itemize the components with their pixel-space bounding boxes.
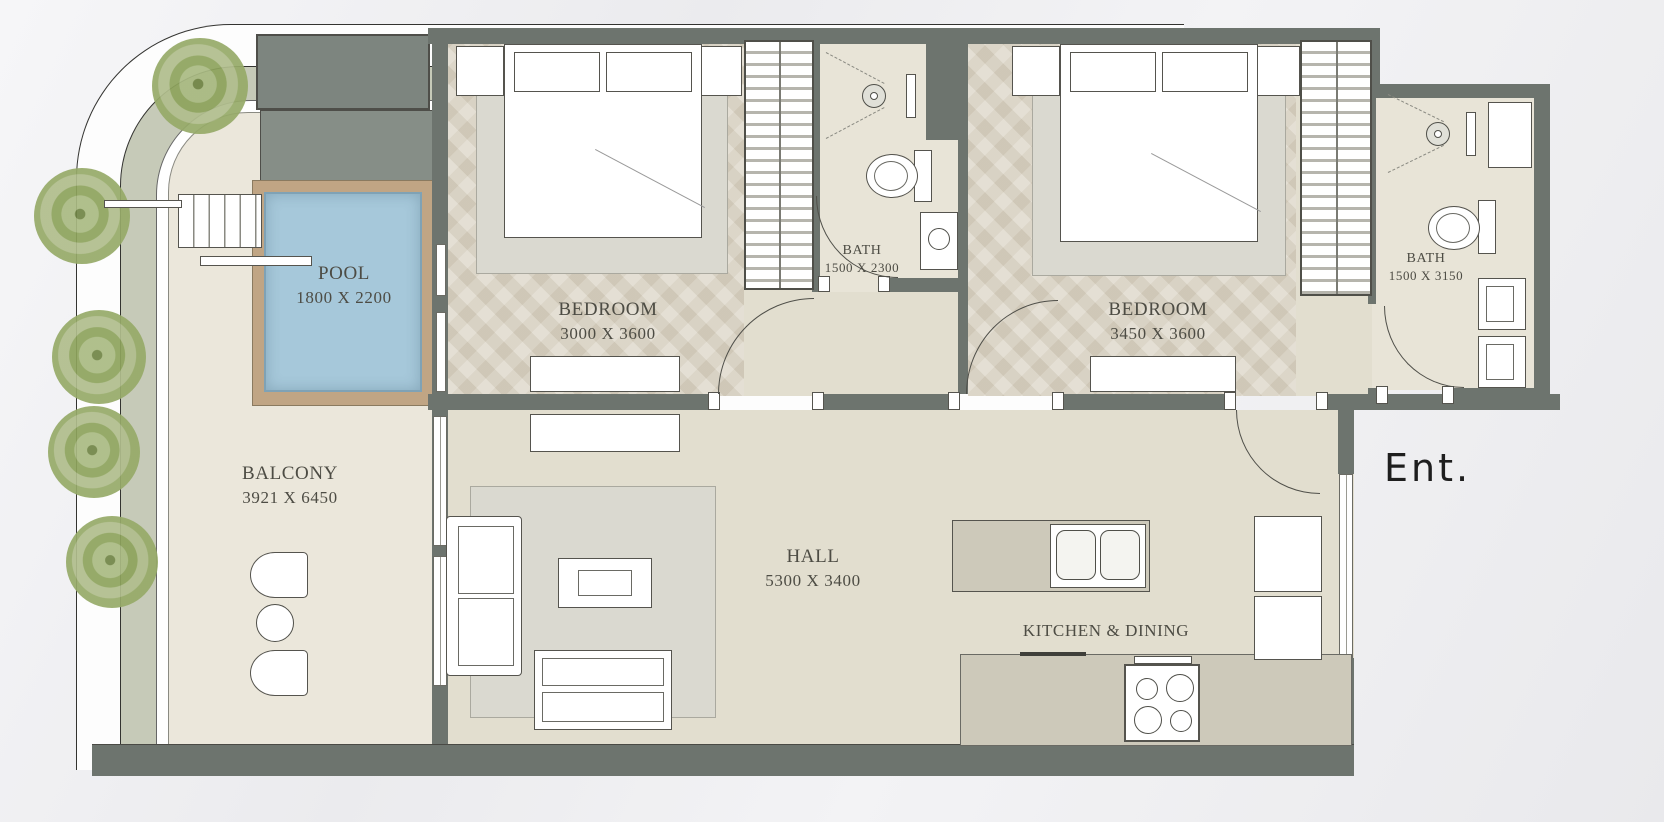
- shower-bar: [906, 74, 916, 118]
- sink-basin: [1056, 530, 1096, 580]
- window: [436, 244, 446, 296]
- pool-handrail: [104, 200, 182, 208]
- pool-entry-rail: [200, 256, 312, 266]
- bath1-label: BATH 1500 X 2300: [792, 242, 932, 277]
- hall-label: HALL 5300 X 3400: [693, 545, 933, 592]
- wall: [428, 394, 720, 410]
- nightstand: [1012, 46, 1060, 96]
- bedroom1-bench: [530, 356, 680, 392]
- shower-bar: [1466, 112, 1476, 156]
- wall: [1452, 388, 1550, 404]
- door-frame: [878, 276, 890, 292]
- floor-plan: POOL 1800 X 2200: [0, 0, 1664, 822]
- sink-basin: [1486, 286, 1514, 322]
- showerhead-center: [1434, 130, 1442, 138]
- kitchen-cabinet: [1254, 596, 1322, 660]
- balcony-sliding-door: [433, 556, 447, 686]
- balcony-dims: 3921 X 6450: [170, 487, 410, 509]
- tree-icon: [66, 516, 158, 608]
- wall: [812, 394, 960, 410]
- wall: [92, 744, 1354, 776]
- glass-divider: [440, 557, 441, 685]
- door-frame: [1442, 386, 1454, 404]
- sink-basin: [1486, 344, 1514, 380]
- pillow: [1070, 52, 1156, 92]
- kitchen-label: KITCHEN & DINING: [966, 620, 1246, 642]
- pool-structure-upper: [256, 34, 430, 110]
- nightstand: [700, 46, 742, 96]
- door-frame: [818, 276, 830, 292]
- kitchen-name: KITCHEN & DINING: [966, 620, 1246, 642]
- wall: [1338, 410, 1354, 474]
- wall: [1372, 84, 1550, 98]
- balcony-chair: [250, 552, 308, 598]
- entrance-label: Ent.: [1384, 446, 1471, 490]
- wardrobe-divider: [1336, 42, 1338, 294]
- stove-handle: [1134, 656, 1192, 664]
- bedroom1-name: BEDROOM: [488, 298, 728, 323]
- stove: [1124, 664, 1200, 742]
- pool-ladder: [178, 194, 262, 248]
- bath2-label: BATH 1500 X 3150: [1356, 250, 1496, 285]
- pool-dims: 1800 X 2200: [266, 287, 422, 309]
- counter-handle: [1020, 652, 1086, 656]
- sofa-cushion: [458, 526, 514, 594]
- hall-console: [530, 414, 680, 452]
- bath1-name: BATH: [792, 242, 932, 260]
- bath2-dims: 1500 X 3150: [1356, 268, 1496, 285]
- bedroom2-name: BEDROOM: [1038, 298, 1278, 323]
- toilet-tank: [1478, 200, 1496, 254]
- shower-shelf: [1488, 102, 1532, 168]
- tree-icon: [48, 406, 140, 498]
- tv-console-shelf: [542, 692, 664, 722]
- nightstand: [1254, 46, 1300, 96]
- wall: [1052, 394, 1232, 410]
- nightstand: [456, 46, 504, 96]
- bedroom1-label: BEDROOM 3000 X 3600: [488, 298, 728, 345]
- toilet-seat: [874, 161, 908, 191]
- hall-name: HALL: [693, 545, 933, 570]
- sofa-cushion: [458, 598, 514, 666]
- bedroom2-dims: 3450 X 3600: [1038, 323, 1278, 345]
- bath1-dims: 1500 X 2300: [792, 260, 932, 277]
- fridge: [1254, 516, 1322, 592]
- bedroom2-bench: [1090, 356, 1236, 392]
- balcony-sliding-door: [433, 416, 447, 546]
- pillow: [1162, 52, 1248, 92]
- wall: [890, 278, 968, 292]
- balcony-name: BALCONY: [170, 462, 410, 487]
- wall: [1534, 84, 1550, 404]
- door-frame: [1052, 392, 1064, 410]
- door-frame: [708, 392, 720, 410]
- window: [1339, 474, 1353, 658]
- window: [436, 312, 446, 392]
- burner: [1136, 678, 1158, 700]
- balcony-label: BALCONY 3921 X 6450: [170, 462, 410, 509]
- pool-structure-lower: [260, 110, 436, 184]
- hall-dims: 5300 X 3400: [693, 570, 933, 592]
- door-frame: [812, 392, 824, 410]
- showerhead-center: [870, 92, 878, 100]
- pillow: [514, 52, 600, 92]
- tree-icon: [152, 38, 248, 134]
- wardrobe-divider: [779, 42, 781, 288]
- pillow: [606, 52, 692, 92]
- wall: [926, 44, 966, 140]
- wall: [428, 28, 968, 44]
- glass-divider: [440, 417, 441, 545]
- burner: [1166, 674, 1194, 702]
- door-frame: [1224, 392, 1236, 410]
- door-frame: [948, 392, 960, 410]
- door-frame: [1376, 386, 1388, 404]
- tree-icon: [34, 168, 130, 264]
- bedroom1-dims: 3000 X 3600: [488, 323, 728, 345]
- balcony-chair: [250, 650, 308, 696]
- bedroom2-label: BEDROOM 3450 X 3600: [1038, 298, 1278, 345]
- sink-basin: [1100, 530, 1140, 580]
- tree-icon: [52, 310, 146, 404]
- balcony-table: [256, 604, 294, 642]
- burner: [1170, 710, 1192, 732]
- toilet-seat: [1436, 213, 1470, 243]
- vestibule1-floor: [818, 292, 958, 396]
- tv-console-shelf: [542, 658, 664, 686]
- bath2-name: BATH: [1356, 250, 1496, 268]
- burner: [1134, 706, 1162, 734]
- coffee-table-inner: [578, 570, 632, 596]
- door-frame: [1316, 392, 1328, 410]
- pool-label: POOL 1800 X 2200: [266, 262, 422, 309]
- glass-divider: [1346, 475, 1347, 657]
